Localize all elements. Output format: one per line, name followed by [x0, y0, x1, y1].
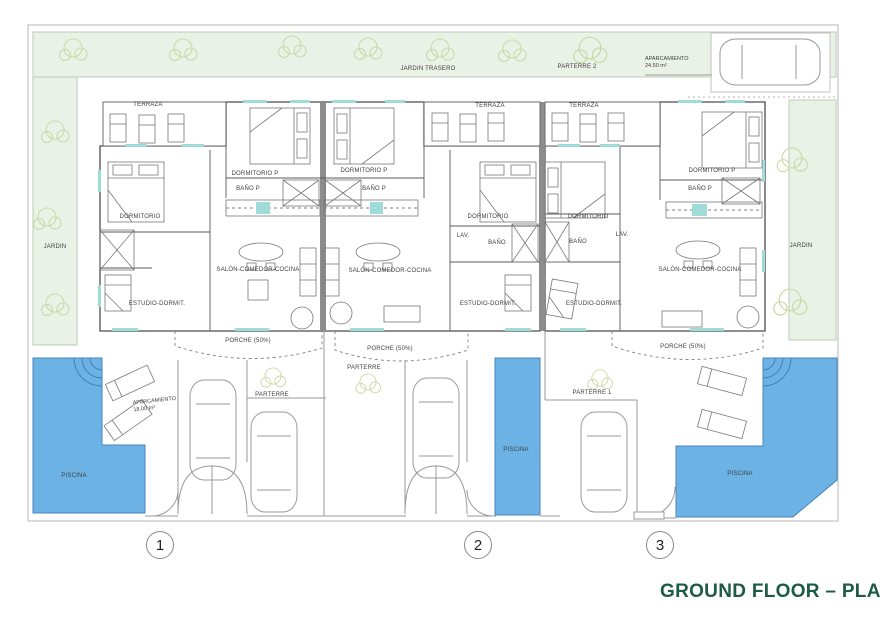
label-unit1-dormitorio: DORMITORIO: [120, 214, 161, 220]
label-unit3-dormitorio: DORMITORIO: [568, 214, 609, 220]
aparcamiento-top-line2: 24.50 m²: [645, 63, 667, 69]
label-unit2-bano-p: BAÑO P: [362, 186, 386, 192]
pool-unit2: [495, 358, 540, 515]
car-outline-bay2: [251, 412, 297, 512]
label-parterre-b: PARTERRE: [347, 365, 381, 371]
label-unit3-terraza: TERRAZA: [569, 103, 598, 109]
pool-loungers: [104, 365, 747, 440]
label-piscina-2: PISCINA: [503, 447, 528, 453]
label-unit3-estudio: ESTUDIO-DORMIT.: [566, 301, 622, 307]
label-unit1-bano-p: BAÑO P: [236, 186, 260, 192]
car-outline-unit2: [413, 378, 459, 478]
shower-unit1-banop: [283, 180, 319, 206]
car-outline-unit3: [581, 412, 627, 512]
garden-band-right: [789, 100, 836, 340]
round-table-unit2: [330, 302, 352, 324]
shower-unit2-bano: [512, 224, 538, 262]
sofa2-unit3: [662, 311, 702, 327]
label-unit2-lav: LAV.: [457, 233, 470, 239]
label-unit2-dormitorio: DORMITORIO: [468, 214, 509, 220]
round-table-unit3: [737, 306, 759, 328]
party-wall-2-3: [540, 102, 545, 331]
entry-arch-unit2: [405, 466, 467, 514]
label-unit2-estudio: ESTUDIO-DORMIT.: [460, 301, 516, 307]
driveways: [145, 331, 676, 519]
label-jardin-right: JARDIN: [790, 243, 813, 249]
car-outline-unit1: [190, 380, 236, 480]
sofa2-unit2: [384, 306, 420, 322]
shower-unit1-bano: [100, 230, 134, 270]
shower-unit3-banop: [722, 178, 760, 204]
sofa-unit1: [300, 248, 316, 296]
entry-arch-unit1: [178, 466, 247, 514]
label-aparcamiento-top: APARCAMIENTO 24.50 m²: [645, 56, 689, 69]
bed-unit3-dormitorio-p: [702, 112, 762, 168]
round-table-unit1: [291, 307, 313, 329]
label-parterre-2: PARTERRE 2: [557, 64, 596, 70]
label-jardin-trasero: JARDIN TRASERO: [400, 66, 455, 72]
bed-unit1-dormitorio: [108, 162, 164, 222]
gate-threshold-unit3: [634, 512, 664, 519]
label-unit2-dormitorio-p: DORMITORIO P: [341, 168, 388, 174]
label-unit2-terraza: TERRAZA: [475, 103, 504, 109]
label-unit2-salon: SALÓN-COMEDOR-COCINA: [348, 268, 431, 274]
page-title: GROUND FLOOR – PLANTA B: [660, 581, 880, 603]
table-unit1: [248, 280, 268, 300]
label-unit1-salon: SALÓN-COMEDOR-COCINA: [216, 267, 299, 273]
label-unit3-bano-p: BAÑO P: [688, 186, 712, 192]
kitchen-island-unit1: [239, 243, 283, 270]
unit-1-number-badge: 1: [146, 531, 174, 559]
label-unit1-terraza: TERRAZA: [133, 102, 162, 108]
bed-unit3-estudio: [546, 279, 578, 319]
floor-plan-page: { "title": { "text": "GROUND FLOOR – PLA…: [0, 0, 880, 640]
bed-unit1-dormitorio-p: [250, 108, 310, 164]
bed-unit3-dormitorio: [545, 162, 605, 218]
party-wall-1-2: [320, 102, 326, 331]
sofa-unit3: [740, 248, 756, 296]
garden-band-left: [33, 77, 77, 345]
label-unit3-lav: LAV.: [616, 232, 629, 238]
label-unit1-estudio: ESTUDIO-DORMIT.: [129, 301, 185, 307]
shower-unit3-bano: [545, 222, 569, 262]
label-piscina-3: PISCINA: [727, 471, 752, 477]
label-unit3-porche: PORCHE (50%): [660, 344, 706, 350]
aparcamiento-top-line1: APARCAMIENTO: [645, 56, 689, 62]
label-unit2-bano: BAÑO: [488, 240, 506, 246]
floor-plan-drawing: [0, 0, 880, 640]
shower-unit2-banop: [325, 180, 361, 206]
kitchen-island-unit2: [356, 243, 400, 270]
bed-unit1-estudio: [105, 275, 131, 311]
label-unit3-bano: BAÑO: [569, 239, 587, 245]
kitchen-island-unit3: [676, 241, 720, 268]
unit-2-number-badge: 2: [464, 531, 492, 559]
label-piscina-1: PISCINA: [61, 473, 86, 479]
label-unit3-salon: SALÓN-COMEDOR-COCINA: [658, 267, 741, 273]
label-unit1-dormitorio-p: DORMITORIO P: [232, 171, 279, 177]
label-unit3-dormitorio-p: DORMITORIO P: [689, 168, 736, 174]
label-parterre-1: PARTERRE 1: [572, 390, 611, 396]
label-unit2-porche: PORCHE (50%): [367, 346, 413, 352]
label-unit1-porche: PORCHE (50%): [225, 338, 271, 344]
bed-unit2-dormitorio: [480, 162, 536, 222]
label-parterre-a: PARTERRE: [255, 392, 289, 398]
unit-3-number-badge: 3: [646, 531, 674, 559]
bed-unit2-dormitorio-p: [334, 108, 394, 164]
label-jardin-left: JARDIN: [44, 244, 67, 250]
